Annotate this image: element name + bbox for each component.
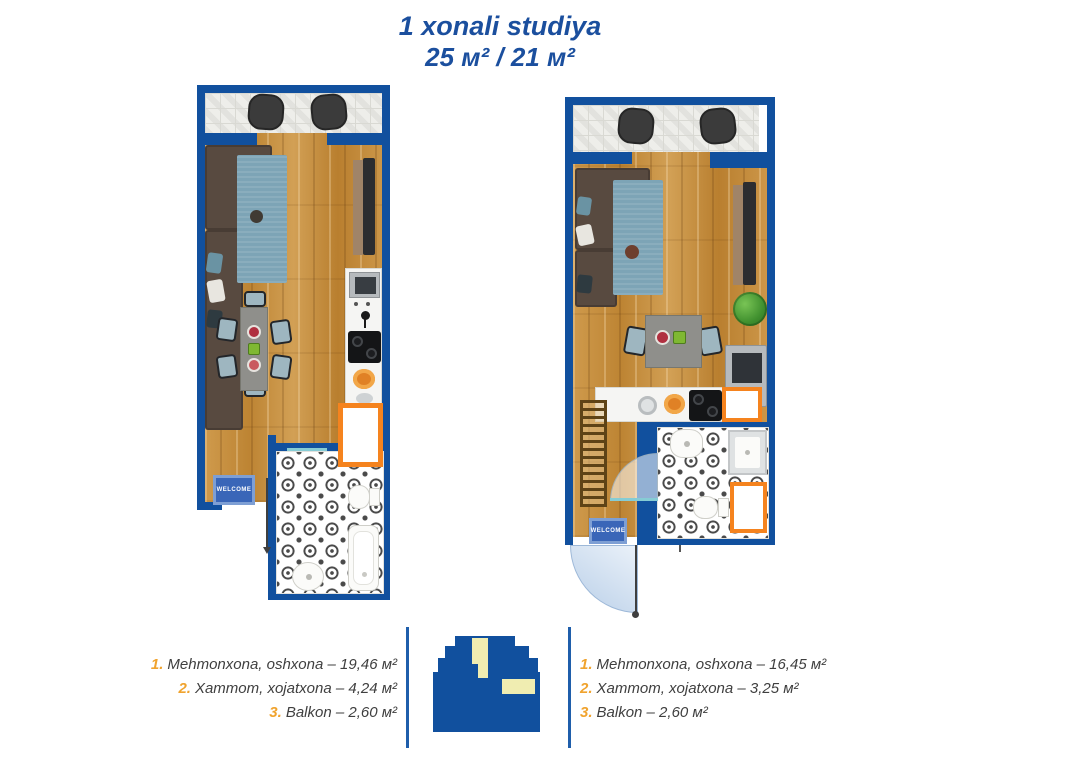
plate-icon: [655, 330, 670, 345]
plate-icon: [247, 325, 261, 339]
legend-row: 1.Mehmonxona, oshxona – 19,46 м²: [120, 653, 397, 677]
balcony-wall: [710, 152, 767, 168]
shower-icon: [728, 430, 767, 475]
legend-label: Xammom, xojatxona – 3,25 м²: [597, 680, 799, 697]
legend-label: Xammom, xojatxona – 4,24 м²: [195, 680, 397, 697]
legend-number: 3.: [580, 704, 593, 721]
balcony-floor: [205, 93, 382, 133]
dining-chair-icon: [244, 291, 266, 307]
bathroom-door: [610, 498, 658, 501]
wall: [565, 97, 775, 105]
pillow-icon: [576, 196, 592, 216]
knob: [366, 302, 370, 306]
legend-label: Mehmonxona, oshxona – 16,45 м²: [597, 656, 827, 673]
burner: [352, 336, 363, 347]
bathroom-wall: [268, 435, 276, 600]
entrance-door-line: [266, 478, 268, 548]
burner: [693, 394, 704, 405]
legend-row: 3.Balkon – 2,60 м²: [120, 701, 397, 725]
drain: [684, 441, 690, 447]
tv-icon: [743, 182, 756, 285]
page-title-block: 1 xonali studiya 25 м² / 21 м²: [210, 10, 790, 72]
legend-label: Balkon – 2,60 м²: [597, 704, 708, 721]
legend-row: 2.Xammom, xojatxona – 3,25 м²: [580, 677, 860, 701]
entrance-door-swing: [570, 545, 638, 613]
coffee-table-icon: [250, 210, 263, 223]
balcony-chair-icon: [309, 92, 348, 131]
balcony-wall: [573, 152, 632, 164]
balcony-chair-icon: [247, 93, 285, 131]
dining-chair-icon: [215, 317, 238, 343]
wall: [565, 97, 573, 545]
toilet-tank: [718, 498, 729, 517]
floor-plan-right: WELCOME: [565, 97, 775, 617]
entrance-door-line: [635, 545, 637, 615]
highlighted-unit: [502, 679, 535, 694]
highlighted-unit: [472, 638, 488, 664]
page-title: 1 xonali studiya: [210, 10, 790, 42]
cooktop-icon: [348, 331, 381, 363]
wall: [197, 85, 390, 93]
floor-plan-left: WELCOME: [197, 85, 390, 605]
welcome-mat-text: WELCOME: [591, 528, 626, 534]
balcony-wall: [327, 133, 382, 145]
dining-chair-icon: [269, 319, 292, 346]
bathroom-door: [287, 448, 327, 451]
page-subtitle: 25 м² / 21 м²: [210, 42, 790, 72]
dimension-tick: [679, 545, 681, 552]
door-arrow-icon: [263, 547, 271, 554]
washbasin-icon: [670, 429, 703, 458]
oven-icon: [349, 272, 380, 298]
tv-icon: [363, 158, 375, 255]
wall: [197, 85, 205, 510]
plate-icon: [673, 331, 686, 344]
legend-number: 1.: [580, 656, 593, 673]
pot-icon: [664, 394, 685, 414]
orange-door-frame: [722, 387, 762, 422]
legend-label: Balkon – 2,60 м²: [286, 704, 397, 721]
washbasin-icon: [292, 562, 324, 591]
plate-icon: [247, 358, 261, 372]
fridge-door: [732, 353, 762, 383]
ladder-icon: [580, 400, 607, 507]
legend-number: 2.: [580, 680, 593, 697]
page: { "title": { "line1": "1 xonali studiya"…: [0, 0, 1080, 764]
divider-line: [568, 627, 571, 748]
legend-right: 1.Mehmonxona, oshxona – 16,45 м² 2.Xammo…: [580, 653, 860, 725]
legend-row: 3.Balkon – 2,60 м²: [580, 701, 860, 725]
dining-chair-icon: [215, 354, 238, 380]
pillow-icon: [206, 252, 224, 274]
highlighted-unit: [478, 664, 488, 678]
dining-chair-icon: [269, 354, 292, 381]
welcome-mat: WELCOME: [589, 518, 627, 544]
kitchen-counter: [345, 268, 382, 405]
cooktop-icon: [689, 390, 722, 421]
pillow-icon: [576, 274, 593, 293]
door-handle-dot: [632, 611, 639, 618]
drain: [362, 572, 367, 577]
bathtub-icon: [348, 525, 379, 591]
pot-icon: [353, 369, 375, 389]
sink-icon: [638, 396, 657, 415]
balcony-wall: [205, 133, 257, 145]
legend-row: 2.Xammom, xojatxona – 4,24 м²: [120, 677, 397, 701]
balcony-chair-icon: [616, 106, 655, 145]
welcome-mat: WELCOME: [213, 475, 255, 505]
knob: [354, 302, 358, 306]
building-icon: [433, 634, 540, 732]
legend-row: 1.Mehmonxona, oshxona – 16,45 м²: [580, 653, 860, 677]
legend-label: Mehmonxona, oshxona – 19,46 м²: [167, 656, 397, 673]
burner: [366, 348, 377, 359]
burner: [707, 406, 718, 417]
toilet-icon: [693, 496, 718, 519]
kitchen-counter: [595, 387, 723, 422]
legend-left: 1.Mehmonxona, oshxona – 19,46 м² 2.Xammo…: [120, 653, 397, 725]
legend-number: 3.: [269, 704, 282, 721]
balcony-chair-icon: [698, 106, 738, 146]
drain: [306, 574, 312, 580]
orange-door-frame: [338, 403, 383, 467]
faucet-stem: [364, 319, 366, 328]
welcome-mat-text: WELCOME: [217, 487, 252, 493]
legend-number: 2.: [178, 680, 191, 697]
toilet-tank: [369, 488, 380, 506]
drain: [745, 450, 750, 455]
oven-door: [355, 277, 376, 294]
rug: [613, 180, 663, 295]
legend-number: 1.: [151, 656, 164, 673]
divider-line: [406, 627, 409, 748]
tv-console: [353, 160, 363, 255]
coffee-table-icon: [625, 245, 639, 259]
toilet-icon: [348, 485, 370, 509]
plate-icon: [248, 343, 260, 355]
orange-door-frame: [730, 482, 767, 533]
tv-console: [733, 185, 743, 285]
plant-icon: [733, 292, 767, 326]
